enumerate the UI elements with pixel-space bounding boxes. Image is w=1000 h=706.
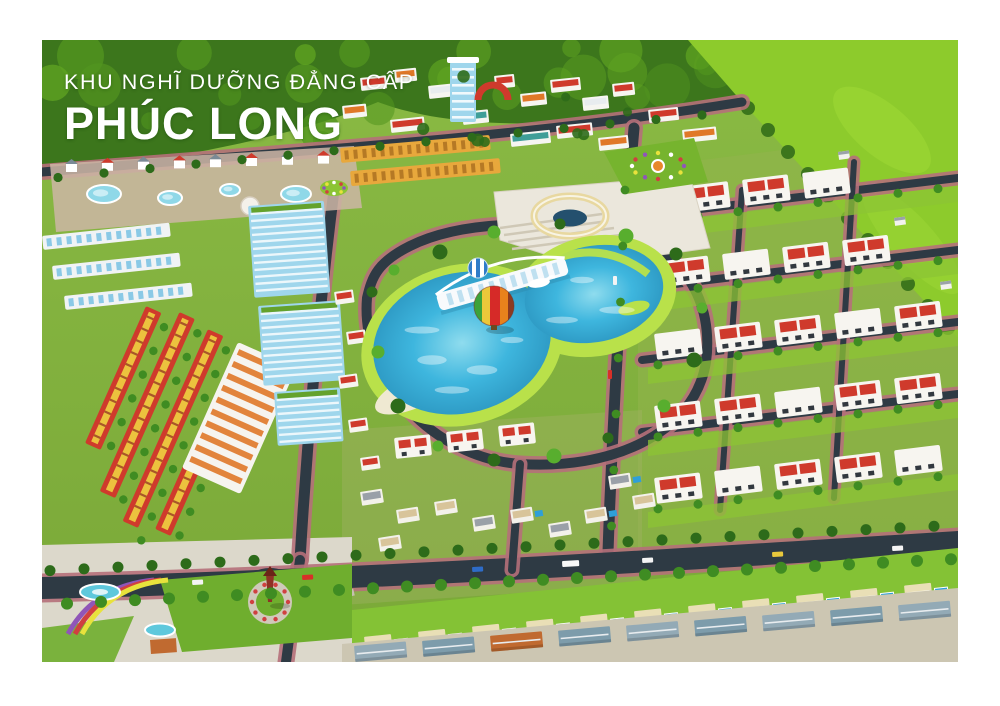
field-tree-row xyxy=(781,145,795,159)
flower xyxy=(253,589,257,593)
avenue-tree xyxy=(249,555,260,566)
roof-panel xyxy=(502,427,515,436)
avenue-tree xyxy=(657,534,668,545)
window xyxy=(46,238,52,246)
window xyxy=(808,477,815,482)
avenue-tree xyxy=(163,592,175,604)
avenue-tree xyxy=(861,524,872,535)
window xyxy=(722,488,729,493)
window xyxy=(750,196,757,201)
window xyxy=(850,257,857,262)
window xyxy=(842,330,849,335)
window xyxy=(354,174,359,183)
row-tree xyxy=(734,495,743,504)
window xyxy=(381,171,386,180)
villa xyxy=(360,455,381,471)
window xyxy=(417,168,422,177)
avenue-tree xyxy=(623,536,634,547)
tower-stripe xyxy=(452,100,474,103)
avenue-tree xyxy=(571,572,583,584)
row-tree xyxy=(894,261,903,270)
window xyxy=(748,484,755,489)
window xyxy=(688,491,695,496)
window xyxy=(675,421,682,426)
avenue-tree xyxy=(61,598,73,610)
avenue-tree xyxy=(793,528,804,539)
roof-panel xyxy=(739,397,756,409)
roof-panel xyxy=(747,180,765,192)
lakefront-villa xyxy=(394,434,432,459)
avenue-tree xyxy=(351,550,362,561)
window xyxy=(419,450,424,455)
commercial-building xyxy=(582,95,609,111)
row-tree xyxy=(934,472,943,481)
avenue-tree xyxy=(607,522,616,531)
water-sparkle xyxy=(570,277,594,284)
avenue-tree xyxy=(621,186,630,195)
window xyxy=(662,494,669,499)
palm-tree xyxy=(433,441,444,452)
tower-stripe xyxy=(452,92,474,95)
tree xyxy=(457,70,470,83)
row-tree xyxy=(814,198,823,207)
avenue-tree xyxy=(877,557,889,569)
row-tree xyxy=(774,347,783,356)
avenue-tree xyxy=(453,545,464,556)
villa xyxy=(802,167,851,198)
avenue-tree xyxy=(537,574,549,586)
window xyxy=(76,266,82,274)
roof-panel xyxy=(799,462,816,474)
window xyxy=(68,298,74,306)
balloon-shadow xyxy=(486,326,514,334)
window xyxy=(868,327,875,332)
roof-panel xyxy=(839,458,857,470)
villa xyxy=(714,465,763,496)
window xyxy=(675,493,682,498)
window xyxy=(748,340,755,345)
villa xyxy=(894,445,943,476)
palm-tree xyxy=(687,353,702,368)
avenue-tree xyxy=(197,591,209,603)
window xyxy=(168,288,174,296)
avenue-tree xyxy=(503,575,515,587)
pond-highlight xyxy=(93,189,108,196)
roof-panel xyxy=(719,327,737,339)
north-road-tree xyxy=(559,124,568,133)
flower xyxy=(339,182,343,186)
window xyxy=(86,234,92,242)
window xyxy=(76,235,82,243)
stripe xyxy=(472,258,476,278)
window xyxy=(178,287,184,295)
window xyxy=(471,444,476,449)
flower xyxy=(273,617,277,621)
window xyxy=(863,255,870,260)
villa xyxy=(654,472,703,503)
avenue-tree xyxy=(469,577,481,589)
avenue-tree xyxy=(605,570,617,582)
window xyxy=(344,150,349,159)
villa xyxy=(338,373,359,389)
avenue-tree xyxy=(809,560,821,572)
monument-shadow xyxy=(270,603,290,609)
pond xyxy=(145,624,175,637)
north-road-tree xyxy=(605,119,614,128)
cottage xyxy=(66,164,77,172)
window xyxy=(688,347,695,352)
avenue-tree xyxy=(759,529,770,540)
blue-apartment-block xyxy=(258,300,345,386)
window xyxy=(416,144,421,153)
commercial-building xyxy=(612,82,635,97)
window xyxy=(748,412,755,417)
window xyxy=(683,276,690,281)
window xyxy=(902,395,909,400)
window xyxy=(128,292,134,300)
row-tree xyxy=(774,419,783,428)
window xyxy=(722,344,729,349)
blue-apartment-block xyxy=(274,387,344,445)
window xyxy=(444,166,449,175)
window xyxy=(842,402,849,407)
avenue-tree xyxy=(299,586,311,598)
avenue-tree xyxy=(265,587,277,599)
window xyxy=(118,293,124,301)
flower xyxy=(322,186,326,190)
window xyxy=(506,440,511,445)
village-house xyxy=(150,638,177,654)
avenue-tree xyxy=(231,589,243,601)
window xyxy=(462,164,467,173)
window xyxy=(480,163,485,172)
water-sparkle xyxy=(467,365,498,375)
palm-tree xyxy=(697,303,708,314)
flower xyxy=(286,600,290,604)
villa-body xyxy=(894,445,943,476)
stripe xyxy=(490,286,500,326)
window xyxy=(56,268,62,276)
roof-panel xyxy=(867,238,884,250)
bus xyxy=(562,560,579,567)
window xyxy=(88,296,94,304)
flower xyxy=(342,186,346,190)
palm-tree xyxy=(372,346,385,359)
row-tree xyxy=(894,189,903,198)
row-tree xyxy=(814,486,823,495)
window xyxy=(855,400,862,405)
palm-tree xyxy=(603,433,614,444)
palm-tree xyxy=(658,400,671,413)
window xyxy=(743,269,750,274)
villa xyxy=(894,301,943,332)
roof-panel xyxy=(659,478,677,490)
window xyxy=(434,142,439,151)
stripe xyxy=(482,286,490,326)
row-tree xyxy=(734,207,743,216)
north-road-tree xyxy=(145,164,154,173)
row-tree xyxy=(854,481,863,490)
flower xyxy=(656,177,660,181)
flower xyxy=(250,600,254,604)
avenue-tree xyxy=(691,533,702,544)
flower xyxy=(643,153,647,157)
window xyxy=(842,474,849,479)
villa-body xyxy=(834,308,883,339)
north-road-tree xyxy=(421,137,430,146)
north-road-tree xyxy=(283,151,292,160)
commercial-building xyxy=(520,91,547,107)
flower xyxy=(633,170,637,174)
window xyxy=(489,162,494,171)
window xyxy=(166,257,172,265)
flower xyxy=(273,583,277,587)
roof-panel xyxy=(899,307,917,319)
lakefront-villa xyxy=(446,428,484,453)
flower xyxy=(669,153,673,157)
window xyxy=(353,150,358,159)
flower xyxy=(682,164,686,168)
window xyxy=(116,231,122,239)
water-sparkle xyxy=(435,386,470,393)
water-sparkle xyxy=(599,306,635,313)
window xyxy=(756,267,763,272)
flower xyxy=(678,157,682,161)
window xyxy=(471,163,476,172)
window xyxy=(158,289,164,297)
north-road-tree xyxy=(237,155,246,164)
window xyxy=(146,228,152,236)
tree xyxy=(578,129,589,140)
cottage xyxy=(210,159,221,167)
villa xyxy=(714,321,763,352)
project-subtitle: KHU NGHĨ DƯỠNG ĐẲNG CẤP xyxy=(64,70,415,95)
avenue-tree xyxy=(614,354,623,363)
window xyxy=(662,350,669,355)
villa xyxy=(842,235,891,266)
window xyxy=(399,170,404,179)
flower xyxy=(282,589,286,593)
window xyxy=(461,140,466,149)
row-tree xyxy=(774,275,783,284)
row-tree xyxy=(694,428,703,437)
villa-body xyxy=(774,387,823,418)
window xyxy=(928,464,935,469)
avenue-tree xyxy=(741,563,753,575)
villa xyxy=(834,380,883,411)
roof-panel xyxy=(919,376,936,388)
avenue-tree xyxy=(639,569,651,581)
window xyxy=(138,291,144,299)
cottage xyxy=(174,160,185,168)
avenue-tree xyxy=(555,539,566,550)
roof-panel xyxy=(739,325,756,337)
window xyxy=(928,320,935,325)
window xyxy=(675,349,682,354)
flower xyxy=(633,157,637,161)
window xyxy=(790,264,797,269)
flower xyxy=(669,175,673,179)
window xyxy=(443,142,448,151)
blue-apartment-block xyxy=(248,201,330,298)
avenue-tree xyxy=(616,298,625,307)
avenue-tree xyxy=(725,531,736,542)
roof-panel xyxy=(679,404,696,416)
villa xyxy=(834,452,883,483)
villa xyxy=(714,393,763,424)
avenue-tree xyxy=(618,242,627,251)
window xyxy=(126,230,132,238)
villa xyxy=(348,417,369,433)
palm-tree xyxy=(488,226,501,239)
flower xyxy=(643,175,647,179)
window xyxy=(836,186,843,191)
roof-panel xyxy=(687,259,704,271)
roof-panel xyxy=(466,432,479,441)
tower-stripe xyxy=(452,116,474,119)
window xyxy=(795,479,802,484)
roof-panel xyxy=(899,379,917,391)
roof-panel xyxy=(518,426,531,435)
palm-tree xyxy=(433,245,448,260)
window xyxy=(902,467,909,472)
avenue-tree xyxy=(827,526,838,537)
stripe xyxy=(500,286,508,326)
window xyxy=(56,237,62,245)
water-sparkle xyxy=(405,326,440,333)
window xyxy=(803,262,810,267)
tree xyxy=(417,123,429,135)
palm-tree xyxy=(619,229,634,244)
project-title-block: KHU NGHĨ DƯỠNG ĐẲNG CẤP PHÚC LONG xyxy=(64,70,415,150)
villa xyxy=(774,387,823,418)
pond-highlight xyxy=(224,187,233,192)
car xyxy=(642,557,653,563)
avenue-tree xyxy=(113,562,124,573)
car xyxy=(302,574,313,580)
window xyxy=(148,290,154,298)
avenue-tree xyxy=(129,594,141,606)
north-road-tree xyxy=(697,110,706,119)
roof-panel xyxy=(679,476,696,488)
window xyxy=(108,294,114,302)
window xyxy=(782,337,789,342)
roof-panel xyxy=(859,383,876,395)
flower xyxy=(339,190,343,194)
window xyxy=(782,409,789,414)
palm-tree xyxy=(555,219,566,230)
window xyxy=(363,173,368,182)
avenue-tree xyxy=(707,565,719,577)
villa xyxy=(774,459,823,490)
water-sparkle xyxy=(546,317,578,324)
tree xyxy=(623,107,632,116)
tree xyxy=(561,92,570,101)
villa xyxy=(894,373,943,404)
window xyxy=(146,259,152,267)
row-tree xyxy=(774,203,783,212)
window xyxy=(66,236,72,244)
window xyxy=(156,258,162,266)
avenue-tree xyxy=(367,582,379,594)
avenue-tree xyxy=(521,541,532,552)
window xyxy=(810,189,817,194)
window xyxy=(855,472,862,477)
avenue-tree xyxy=(401,581,413,593)
window xyxy=(116,262,122,270)
fountain-foam xyxy=(92,589,108,595)
villa xyxy=(782,242,831,273)
stripe xyxy=(476,258,480,278)
car xyxy=(608,370,612,379)
row-tree xyxy=(934,400,943,409)
window xyxy=(688,419,695,424)
window xyxy=(106,232,112,240)
north-road-tree xyxy=(53,173,62,182)
project-name: PHÚC LONG xyxy=(64,98,415,150)
pool xyxy=(632,476,641,483)
flower xyxy=(325,182,329,186)
flower xyxy=(656,151,660,155)
flower xyxy=(630,164,634,168)
avenue-tree xyxy=(317,551,328,562)
avenue-tree xyxy=(333,584,345,596)
window xyxy=(126,261,132,269)
roof-panel xyxy=(787,248,805,260)
avenue-tree xyxy=(45,565,56,576)
roof-panel xyxy=(414,438,427,447)
window xyxy=(735,414,742,419)
window xyxy=(523,438,528,443)
window xyxy=(390,170,395,179)
window xyxy=(795,335,802,340)
avenue-tree xyxy=(895,522,906,533)
north-road-tree xyxy=(513,128,522,137)
flower xyxy=(262,617,266,621)
lakefront-villa xyxy=(498,422,536,447)
palm-tree xyxy=(488,454,501,467)
car xyxy=(613,276,617,285)
window xyxy=(106,263,112,271)
row-tree xyxy=(934,328,943,337)
avenue-tree xyxy=(181,558,192,569)
window xyxy=(808,333,815,338)
window xyxy=(795,407,802,412)
villa xyxy=(742,174,791,205)
row-tree xyxy=(854,265,863,274)
roof-panel xyxy=(450,433,463,442)
row-tree xyxy=(894,405,903,414)
water-sparkle xyxy=(501,337,524,343)
tower-stripe xyxy=(452,84,474,87)
window xyxy=(823,188,830,193)
avenue-tree xyxy=(79,563,90,574)
window xyxy=(156,227,162,235)
villa xyxy=(834,308,883,339)
window xyxy=(735,486,742,491)
row-tree xyxy=(814,342,823,351)
row-tree xyxy=(694,284,703,293)
tower-cap xyxy=(447,57,479,63)
window xyxy=(662,422,669,427)
window xyxy=(86,265,92,273)
north-road-tree xyxy=(99,168,108,177)
water-sparkle xyxy=(417,355,446,364)
pond-highlight xyxy=(286,190,300,196)
flower xyxy=(282,610,286,614)
roof-panel xyxy=(847,241,865,253)
north-road-tree xyxy=(191,159,200,168)
